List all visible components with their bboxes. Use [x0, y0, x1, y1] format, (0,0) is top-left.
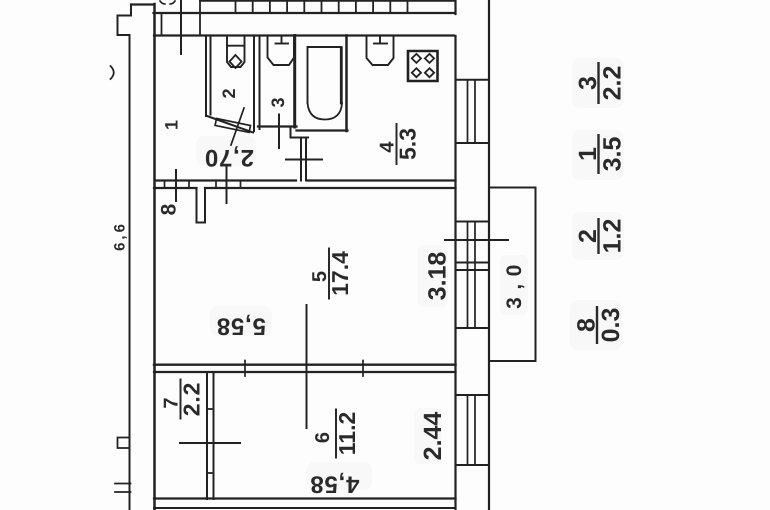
svg-text:6,6: 6,6	[112, 221, 129, 251]
svg-text:2.2: 2.2	[179, 382, 205, 416]
svg-text:2.2: 2.2	[599, 66, 627, 101]
svg-text:1.2: 1.2	[599, 219, 627, 254]
svg-text:5.3: 5.3	[395, 128, 421, 160]
svg-text:3,0: 3,0	[503, 257, 526, 309]
svg-text:8: 8	[158, 203, 181, 215]
svg-text:11.2: 11.2	[334, 412, 360, 456]
svg-text:2.44: 2.44	[419, 412, 447, 461]
svg-text:17.4: 17.4	[327, 251, 353, 296]
svg-text:6: 6	[312, 432, 334, 443]
svg-text:4,58: 4,58	[310, 471, 360, 498]
svg-text:3.5: 3.5	[599, 137, 627, 172]
svg-text:0.3: 0.3	[597, 308, 625, 343]
svg-text:2,70: 2,70	[204, 144, 254, 171]
svg-text:1: 1	[162, 120, 182, 130]
svg-text:3.18: 3.18	[424, 252, 452, 301]
svg-text:5,58: 5,58	[216, 313, 266, 340]
svg-text:3: 3	[268, 97, 288, 107]
svg-text:2: 2	[219, 88, 239, 98]
